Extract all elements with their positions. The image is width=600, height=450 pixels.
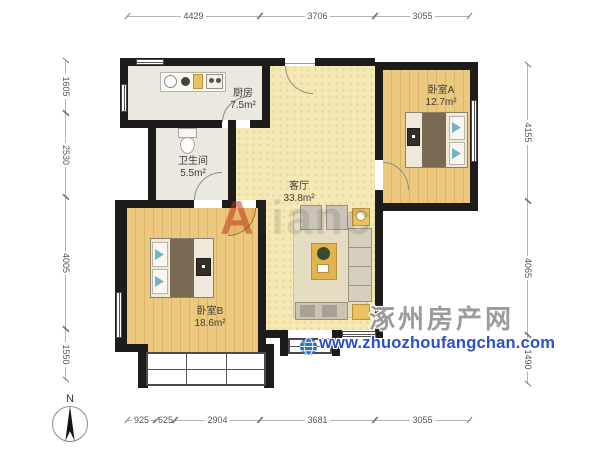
bench-cushion bbox=[322, 305, 337, 317]
floor-plan-canvas: 4429 3706 3055 925 625 2904 3681 3055 16… bbox=[0, 0, 600, 450]
dim-bottom-4: 3681 bbox=[260, 414, 375, 426]
dim-left-3: 4005 bbox=[60, 197, 72, 329]
dim-bottom-2: 625 bbox=[156, 414, 175, 426]
burner-icon bbox=[181, 77, 190, 86]
bed-accent-dot bbox=[202, 265, 205, 268]
dim-top-1: 4429 bbox=[127, 10, 260, 22]
wall bbox=[375, 62, 383, 160]
watermark-brand-initial: A bbox=[220, 191, 256, 244]
wall bbox=[280, 330, 288, 356]
bay-window bbox=[146, 352, 266, 386]
wall bbox=[375, 190, 383, 211]
bay-window-mullion bbox=[186, 353, 187, 385]
globe-icon bbox=[299, 337, 318, 361]
tray-icon bbox=[317, 264, 329, 273]
watermark-site-name: 涿州房产网 bbox=[369, 299, 514, 336]
stove-knob-icon bbox=[209, 78, 214, 83]
wall bbox=[375, 203, 470, 211]
wall bbox=[148, 120, 156, 208]
wall bbox=[250, 120, 270, 128]
room-label-kitchen: 厨房7.5m² bbox=[218, 88, 268, 112]
bedroom-a-window bbox=[471, 100, 477, 162]
kitchen-window bbox=[136, 59, 164, 65]
wall bbox=[315, 58, 375, 66]
hall-floor bbox=[236, 128, 270, 200]
bed-blanket bbox=[422, 113, 446, 167]
wall bbox=[375, 62, 470, 70]
watermark-site-url: www.zhuozhoufangchan.com bbox=[319, 334, 555, 353]
room-label-bedroom-b: 卧室B18.6m² bbox=[182, 306, 238, 330]
bed-accent-dot bbox=[412, 135, 415, 138]
dim-top-3: 3055 bbox=[375, 10, 470, 22]
bedroom-b-side-window bbox=[116, 292, 122, 338]
small-appliance-icon bbox=[193, 74, 203, 89]
dim-bottom-3: 2904 bbox=[175, 414, 260, 426]
compass-north-label: N bbox=[48, 393, 92, 405]
watermark-brand: Alianc bbox=[220, 194, 373, 241]
dim-right-2: 4065 bbox=[522, 201, 534, 335]
bed-blanket bbox=[170, 239, 194, 297]
dim-bottom-5: 3055 bbox=[375, 414, 470, 426]
dim-right-1: 4155 bbox=[522, 64, 534, 201]
watermark-brand-rest: lianc bbox=[256, 191, 373, 244]
kitchen-side-window bbox=[121, 84, 127, 112]
room-label-bathroom: 卫生间5.5m² bbox=[164, 156, 222, 180]
room-label-bedroom-a: 卧室A12.7m² bbox=[414, 85, 468, 109]
dim-left-2: 2530 bbox=[60, 113, 72, 197]
stove-knob-icon bbox=[216, 78, 221, 83]
bay-window-mullion bbox=[226, 353, 227, 385]
dim-bottom-1: 925 bbox=[127, 414, 156, 426]
side-table bbox=[352, 304, 370, 320]
entry-threshold bbox=[285, 63, 315, 64]
wall bbox=[120, 120, 222, 128]
dim-left-1: 1605 bbox=[60, 60, 72, 113]
sink-icon bbox=[164, 75, 177, 88]
dim-left-4: 1550 bbox=[60, 329, 72, 380]
north-compass: N bbox=[48, 393, 92, 449]
dim-top-2: 3706 bbox=[260, 10, 375, 22]
bench-cushion bbox=[300, 305, 315, 317]
plant-icon bbox=[317, 247, 330, 260]
